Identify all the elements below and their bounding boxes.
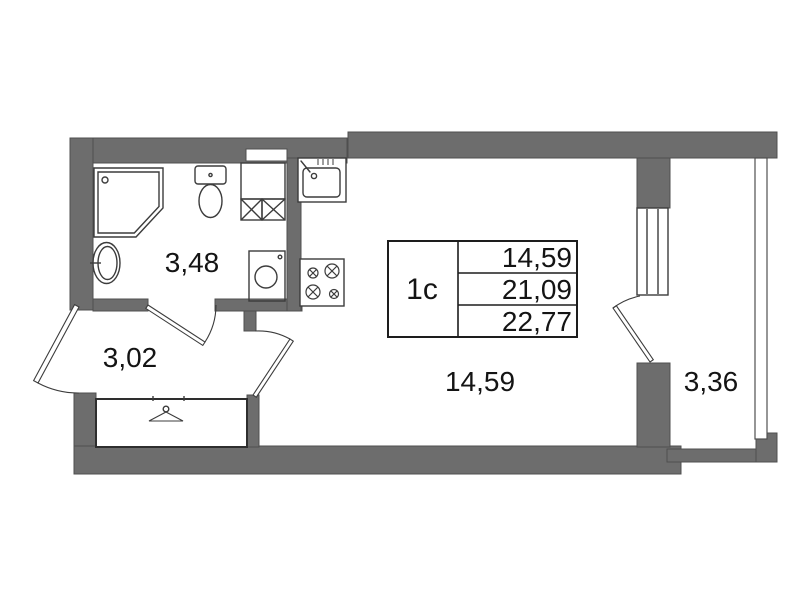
wardrobe-body: [96, 399, 247, 447]
wall-window-bottom-block: [637, 363, 670, 447]
area-value-total-balcony: 22,77: [502, 306, 572, 337]
shower-outer: [94, 168, 163, 237]
area-value-total: 21,09: [502, 274, 572, 305]
wardrobe: [96, 396, 247, 447]
window-frame: [637, 208, 668, 295]
wall-stub-lower: [247, 395, 259, 447]
living-room-area-label: 14,59: [445, 366, 515, 397]
bathroom-door: [146, 305, 216, 345]
door-swing-arc: [38, 383, 79, 393]
balcony-door-leaf: [613, 306, 653, 362]
washing-machine-knob: [278, 255, 282, 259]
living-room-door: [253, 331, 293, 397]
floorplan: 1с 14,59 21,09 22,77 3,48 3,02 14,59 3,3…: [0, 0, 799, 600]
door-swing-arc: [205, 305, 216, 342]
door-swing-arc: [255, 331, 290, 339]
bathroom-door-leaf: [146, 305, 205, 345]
washbasin-icon: [90, 243, 120, 284]
stove-icon: [300, 259, 344, 306]
vent-shaft-icon: [241, 163, 285, 220]
balcony-area-label: 3,36: [684, 366, 739, 397]
bathroom-area-label: 3,48: [165, 247, 220, 278]
washing-machine-icon: [249, 251, 285, 301]
washing-machine-drum: [255, 266, 277, 288]
unit-type-label: 1с: [406, 273, 438, 306]
wall-niche: [246, 149, 287, 161]
toilet-tank: [195, 166, 226, 184]
shelf-box: [241, 163, 285, 199]
kitchen-sink-icon: [298, 158, 346, 202]
entrance-door: [34, 305, 79, 393]
hallway-area-label: 3,02: [103, 342, 158, 373]
wall-top-right: [348, 132, 777, 158]
wall-stub-upper: [244, 311, 256, 331]
window-glyph: [637, 208, 668, 295]
living-room-door-leaf: [253, 339, 293, 397]
area-value-living: 14,59: [502, 242, 572, 273]
entrance-door-leaf: [34, 305, 79, 383]
toilet-icon: [195, 166, 226, 218]
wall-left-upper: [70, 138, 93, 310]
wall-bottom: [74, 446, 681, 474]
toilet-bowl: [199, 185, 222, 218]
wall-window-top-block: [637, 158, 670, 208]
shower-icon: [94, 168, 163, 237]
area-table: 1с 14,59 21,09 22,77: [388, 241, 577, 337]
balcony-glazing: [755, 158, 767, 439]
wall-bathroom-bottom-left: [93, 299, 148, 311]
balcony-door: [613, 296, 653, 362]
floorplan-canvas: 1с 14,59 21,09 22,77 3,48 3,02 14,59 3,3…: [0, 0, 799, 600]
toilet-button: [209, 173, 212, 176]
